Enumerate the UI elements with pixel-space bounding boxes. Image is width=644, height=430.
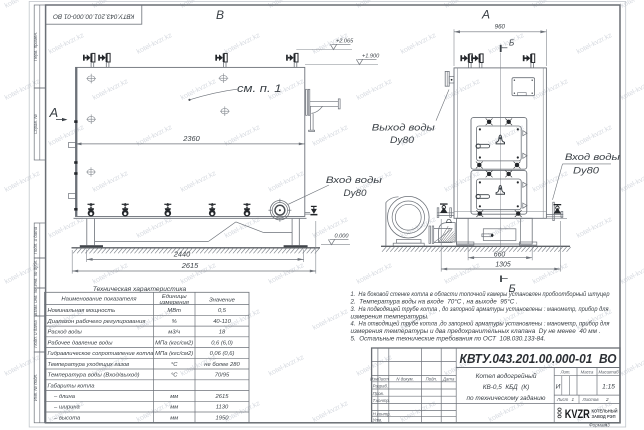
svg-text:Пров.: Пров.: [373, 391, 384, 396]
svg-text:КВТУ.043.201.00.000-01 ВО: КВТУ.043.201.00.000-01 ВО: [53, 13, 134, 20]
svg-text:Масштаб: Масштаб: [598, 370, 619, 375]
svg-text:1:15: 1:15: [602, 384, 615, 391]
svg-text:Выход воды: Выход воды: [372, 123, 435, 133]
svg-text:В: В: [216, 8, 224, 22]
svg-text:Диапазон рабочего регулировани: Диапазон рабочего регулирования: [46, 319, 145, 325]
svg-text:Перв. примен.: Перв. примен.: [33, 32, 38, 61]
svg-text:Расход воды: Расход воды: [48, 330, 83, 336]
svg-text:мм: мм: [170, 405, 178, 411]
svg-text:Инв. № подл.: Инв. № подл.: [33, 374, 38, 401]
svg-text:660: 660: [494, 252, 506, 259]
svg-text:5. Остальные технические треб: 5. Остальные технические требования по О…: [351, 334, 546, 342]
svg-text:ЗАВОД РЭП: ЗАВОД РЭП: [592, 414, 616, 419]
svg-text:2440: 2440: [173, 250, 191, 259]
svg-text:Dy80: Dy80: [390, 135, 414, 145]
svg-text:Справ. №: Справ. №: [33, 114, 38, 134]
svg-text:Гидравлическое сопротивление к: Гидравлическое сопротивление котла: [48, 351, 155, 357]
svg-text:40-110: 40-110: [213, 319, 231, 325]
svg-text:2: 2: [605, 397, 609, 402]
svg-text:мм: мм: [170, 394, 178, 400]
svg-text:3. На подводящей трубе котла: 3. На подводящей трубе котла , до запорн…: [351, 305, 610, 313]
svg-text:Дата: Дата: [442, 376, 455, 381]
svg-text:Подп. и дата: Подп. и дата: [33, 226, 38, 254]
svg-text:70/95: 70/95: [215, 373, 230, 379]
svg-text:Б: Б: [509, 39, 514, 48]
svg-text:Техническая характеристика: Техническая характеристика: [93, 286, 187, 293]
svg-text:°С: °С: [171, 362, 178, 368]
svg-text:Лист: Лист: [377, 376, 389, 381]
svg-text:не более 280: не более 280: [204, 362, 240, 368]
svg-text:°С: °С: [171, 373, 178, 379]
svg-text:Инв. № дубл.: Инв. № дубл.: [33, 259, 38, 286]
svg-text:измерения: измерения: [159, 300, 189, 306]
svg-text:Рабочее давление воды: Рабочее давление воды: [48, 340, 114, 346]
svg-text:А: А: [481, 8, 490, 22]
svg-text:0.000: 0.000: [335, 233, 350, 239]
svg-text:КОТЕЛЬНЫЙ: КОТЕЛЬНЫЙ: [592, 408, 618, 413]
svg-text:– высота: – высота: [53, 416, 81, 422]
svg-text:по техническому заданию: по техническому заданию: [467, 394, 546, 402]
svg-text:Dy80: Dy80: [573, 166, 599, 176]
svg-text:Лит.: Лит.: [560, 370, 571, 375]
svg-text:1305: 1305: [495, 261, 510, 268]
svg-text:Подп. и дата: Подп. и дата: [33, 320, 38, 348]
svg-text:%: %: [172, 319, 177, 325]
svg-text:0,5: 0,5: [218, 308, 227, 314]
svg-text:м3/ч: м3/ч: [168, 330, 180, 336]
svg-text:1950: 1950: [216, 416, 230, 422]
svg-text:МПа (кгс/см2): МПа (кгс/см2): [155, 351, 193, 357]
svg-text:КВ-0,5 КБД (К): КВ-0,5 КБД (К): [483, 384, 529, 391]
svg-text:960: 960: [495, 24, 506, 31]
svg-text:KVZR: KVZR: [565, 407, 590, 421]
svg-text:Номинальная мощность: Номинальная мощность: [48, 308, 116, 314]
svg-text:2615: 2615: [181, 261, 199, 270]
svg-text:мм: мм: [170, 416, 178, 422]
svg-text:МВт: МВт: [167, 308, 181, 314]
svg-text:+2.065: +2.065: [336, 38, 354, 44]
svg-text:18: 18: [219, 330, 226, 336]
svg-text:Вход воды: Вход воды: [565, 152, 620, 162]
svg-text:2360: 2360: [182, 134, 200, 143]
svg-text:Масса: Масса: [581, 370, 594, 375]
svg-text:А: А: [49, 105, 59, 120]
svg-text:N докум.: N докум.: [396, 376, 413, 381]
svg-text:– ширина: – ширина: [53, 405, 81, 411]
svg-text:2615: 2615: [215, 394, 230, 400]
svg-text:Температура воды (Вход/выход): Температура воды (Вход/выход): [48, 373, 140, 379]
svg-text:КВТУ.043.201.00.000-01 ВО: КВТУ.043.201.00.000-01 ВО: [460, 352, 617, 366]
svg-text:измерения температуры.: измерения температуры.: [351, 313, 429, 320]
svg-text:МПа (кгс/см2): МПа (кгс/см2): [155, 340, 193, 346]
svg-text:2. Температура воды на входе: 2. Температура воды на входе 70°С , на в…: [350, 298, 518, 306]
svg-text:ООО: ООО: [558, 407, 564, 418]
svg-text:+1.900: +1.900: [362, 53, 380, 59]
svg-text:Dy80: Dy80: [344, 188, 367, 198]
svg-text:1: 1: [572, 397, 575, 402]
svg-text:0,06 (0,6): 0,06 (0,6): [210, 351, 235, 357]
svg-text:И: И: [556, 384, 561, 391]
svg-text:0,6 (6,0): 0,6 (6,0): [211, 340, 233, 346]
svg-text:Вход воды: Вход воды: [326, 175, 382, 185]
svg-text:Температура уходящих газов: Температура уходящих газов: [48, 362, 130, 368]
svg-text:Габариты котла: Габариты котла: [48, 383, 96, 389]
svg-text:см. п. 1: см. п. 1: [237, 83, 282, 95]
svg-text:1. На боковой стенке котла в: 1. На боковой стенке котла в области топ…: [351, 290, 610, 298]
svg-text:Значение: Значение: [209, 297, 236, 303]
svg-text:Листов: Листов: [582, 397, 600, 402]
svg-text:1130: 1130: [216, 405, 229, 411]
svg-text:измерения температуры и два пр: измерения температуры и два предохраните…: [351, 327, 601, 335]
svg-text:Н.контр.: Н.контр.: [373, 411, 391, 416]
svg-text:Разраб.: Разраб.: [373, 384, 389, 389]
svg-text:4. На отводящей трубе котла ,: 4. На отводящей трубе котла ,до запорной…: [351, 320, 611, 328]
svg-text:– длина: – длина: [53, 394, 76, 400]
svg-text:Подп.: Подп.: [426, 376, 437, 381]
svg-text:Утв.: Утв.: [373, 418, 383, 423]
svg-text:Взам. инв. №: Взам. инв. №: [33, 288, 38, 315]
svg-text:Котел водогрейный: Котел водогрейный: [476, 372, 537, 380]
svg-text:Т.контр.: Т.контр.: [373, 398, 390, 403]
svg-text:Наименование показателя: Наименование показателя: [61, 297, 137, 303]
svg-text:Лист: Лист: [556, 397, 569, 402]
svg-text:А3: А3: [603, 423, 610, 428]
